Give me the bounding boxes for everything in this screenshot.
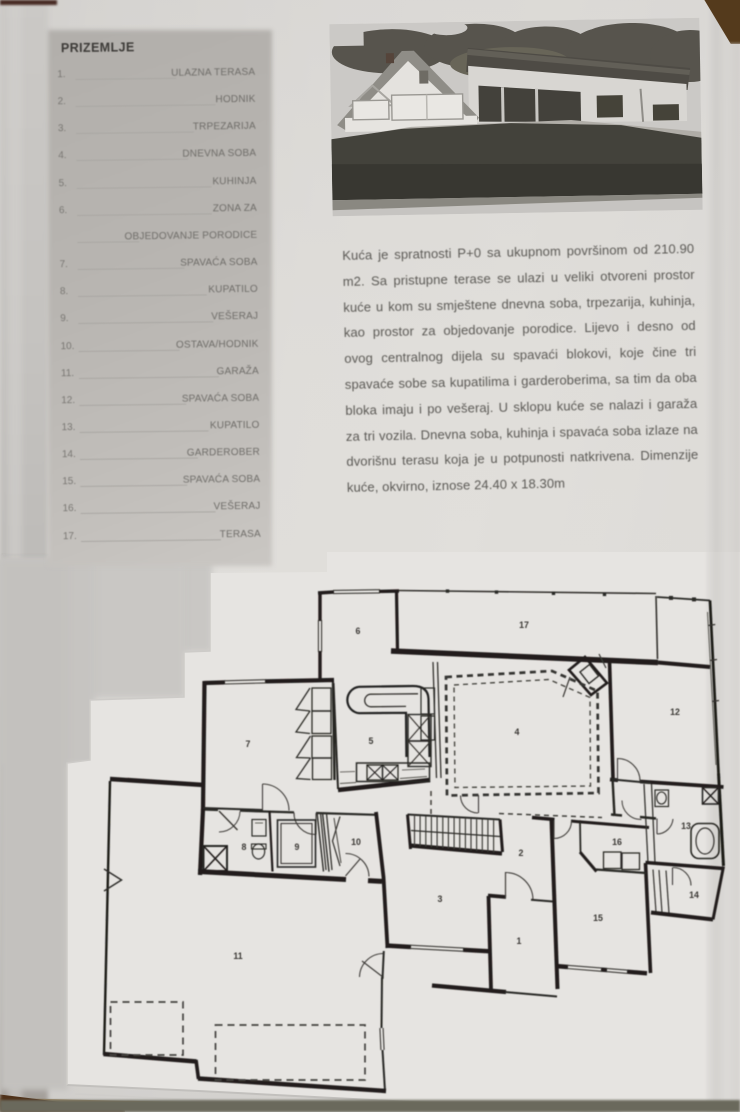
svg-text:5: 5 — [369, 736, 374, 746]
svg-text:2: 2 — [519, 848, 524, 858]
svg-text:11: 11 — [233, 951, 242, 961]
svg-text:9: 9 — [295, 842, 300, 852]
svg-text:17: 17 — [519, 620, 529, 630]
svg-text:14: 14 — [689, 890, 699, 900]
svg-text:13: 13 — [681, 821, 691, 831]
svg-text:6: 6 — [356, 626, 361, 636]
svg-text:16: 16 — [612, 837, 622, 847]
svg-text:10: 10 — [351, 837, 361, 847]
svg-text:15: 15 — [593, 913, 603, 923]
svg-text:3: 3 — [438, 894, 443, 904]
svg-text:7: 7 — [246, 739, 251, 749]
svg-text:4: 4 — [515, 727, 520, 737]
svg-text:12: 12 — [670, 707, 680, 717]
svg-text:1: 1 — [517, 936, 522, 946]
svg-text:8: 8 — [242, 842, 247, 852]
